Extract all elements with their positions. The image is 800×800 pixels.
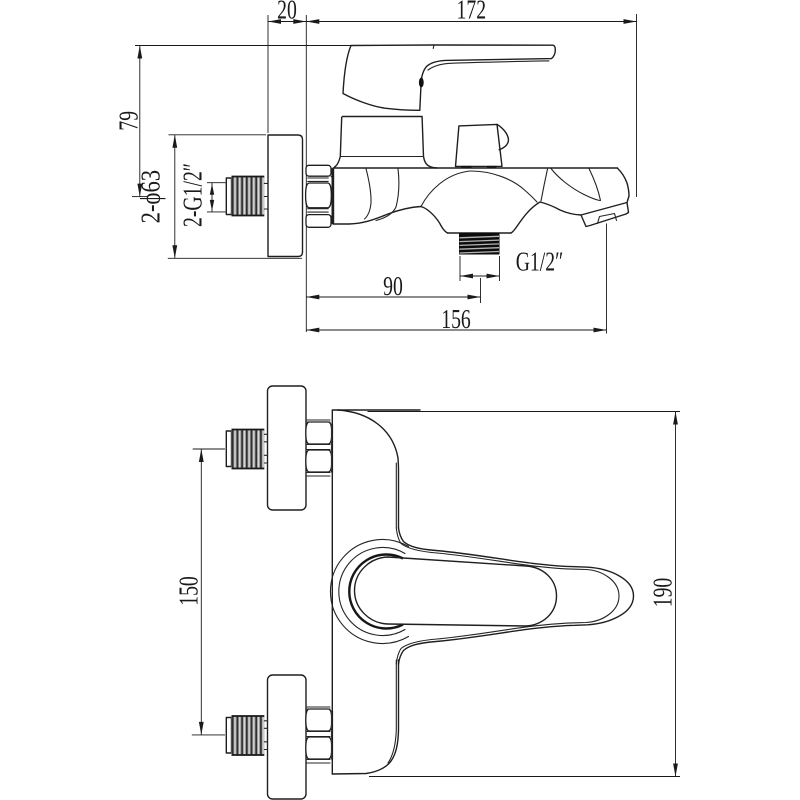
svg-text:2-ϕ63: 2-ϕ63 — [137, 170, 166, 223]
svg-text:2-G1/2″: 2-G1/2″ — [179, 163, 209, 227]
svg-text:172: 172 — [457, 0, 487, 26]
svg-text:90: 90 — [383, 272, 403, 302]
svg-text:156: 156 — [441, 305, 471, 335]
svg-text:20: 20 — [277, 0, 297, 26]
svg-text:150: 150 — [175, 576, 205, 606]
svg-text:190: 190 — [649, 578, 679, 608]
svg-text:79: 79 — [115, 111, 145, 131]
svg-text:G1/2″: G1/2″ — [516, 248, 564, 278]
